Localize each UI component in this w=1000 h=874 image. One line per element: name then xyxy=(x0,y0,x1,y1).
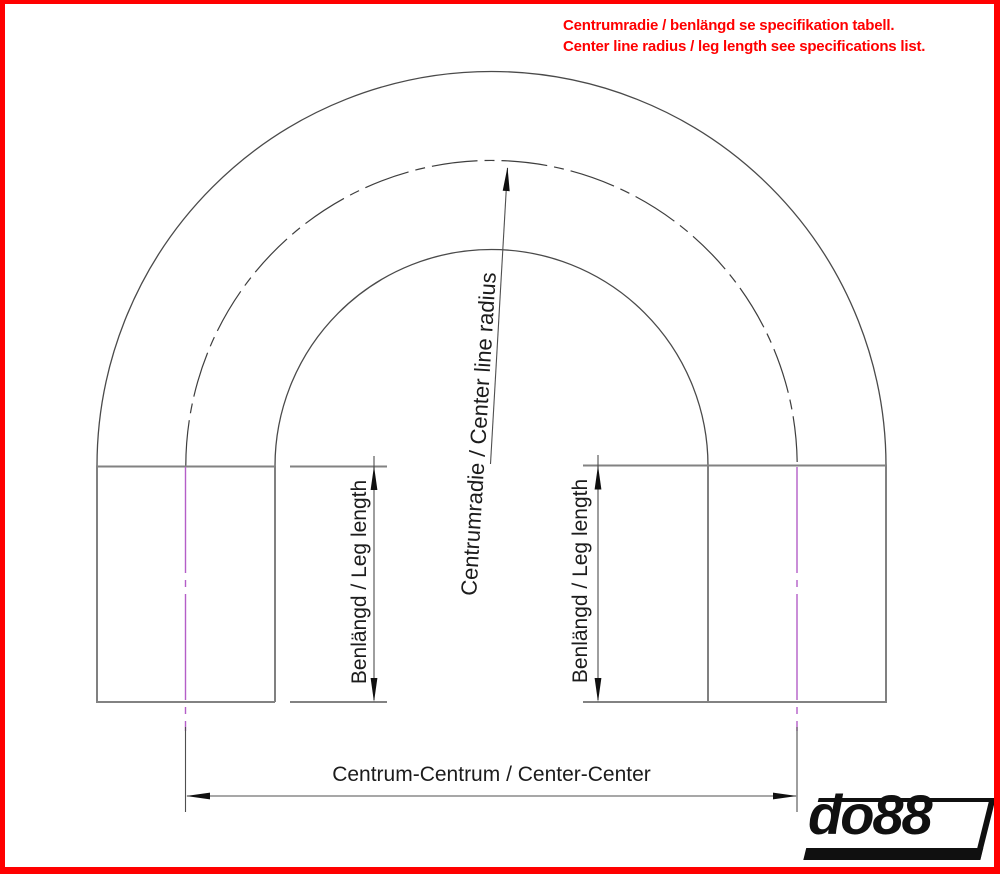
radius-dim-arrow xyxy=(503,167,510,191)
drawing-canvas: Centrumradie / benlängd se specifikation… xyxy=(0,0,1000,874)
label-leg-length-right: Benlängd / Leg length xyxy=(569,479,593,683)
bend-drawing xyxy=(0,0,1000,874)
label-center-center: Centrum-Centrum / Center-Center xyxy=(186,763,797,787)
do88-logo: do88 xyxy=(800,794,996,866)
cc-arrow-right xyxy=(773,793,797,800)
spec-note-line-sv: Centrumradie / benlängd se specifikation… xyxy=(563,15,925,36)
label-leg-length-left: Benlängd / Leg length xyxy=(348,480,372,684)
do88-logo-text: do88 xyxy=(808,787,931,843)
right-dim-arrow-up xyxy=(595,466,602,490)
cc-arrow-left xyxy=(186,793,210,800)
spec-note-line-en: Center line radius / leg length see spec… xyxy=(563,36,925,57)
right-dim-arrow-down xyxy=(595,678,602,702)
spec-note: Centrumradie / benlängd se specifikation… xyxy=(563,15,925,57)
